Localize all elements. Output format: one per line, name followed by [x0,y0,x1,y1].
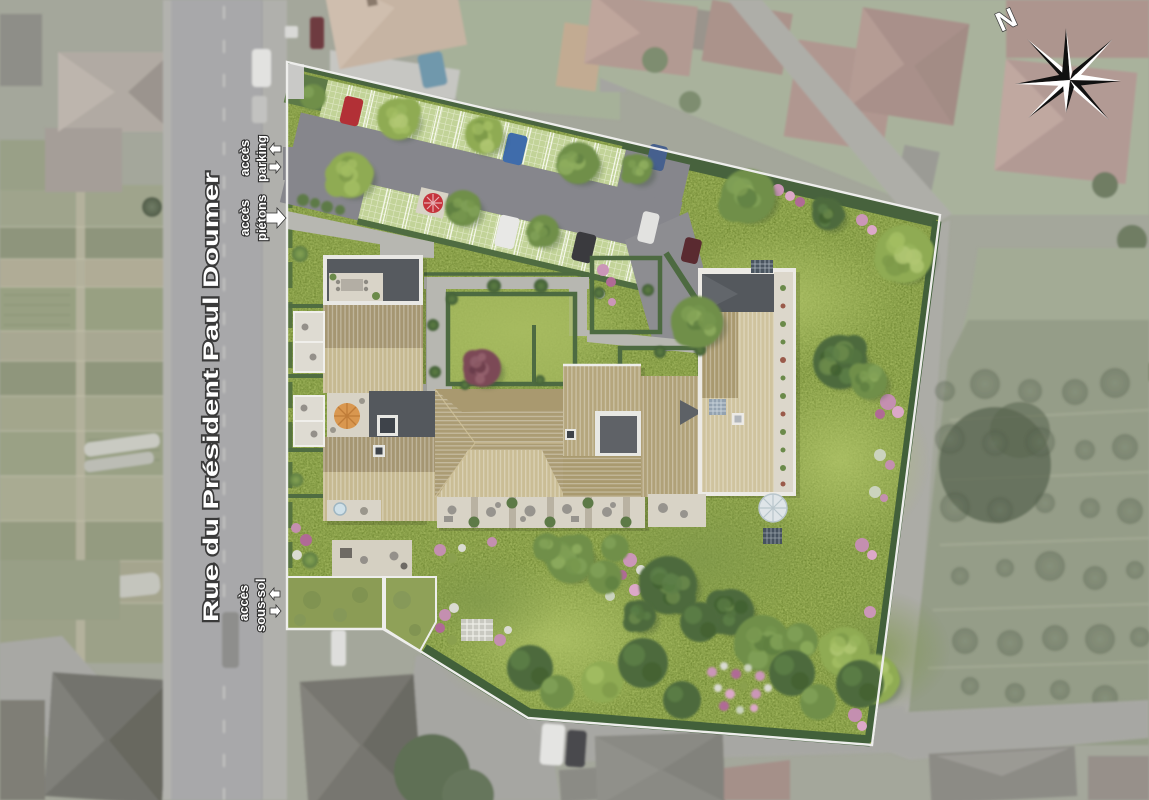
svg-text:accès: accès [236,585,251,621]
svg-text:parking: parking [254,135,269,182]
svg-text:accès: accès [237,140,252,176]
svg-text:Rue du Président Paul Doumer: Rue du Président Paul Doumer [200,172,223,622]
svg-text:accès: accès [237,200,252,236]
svg-text:sous-sol: sous-sol [253,579,268,632]
